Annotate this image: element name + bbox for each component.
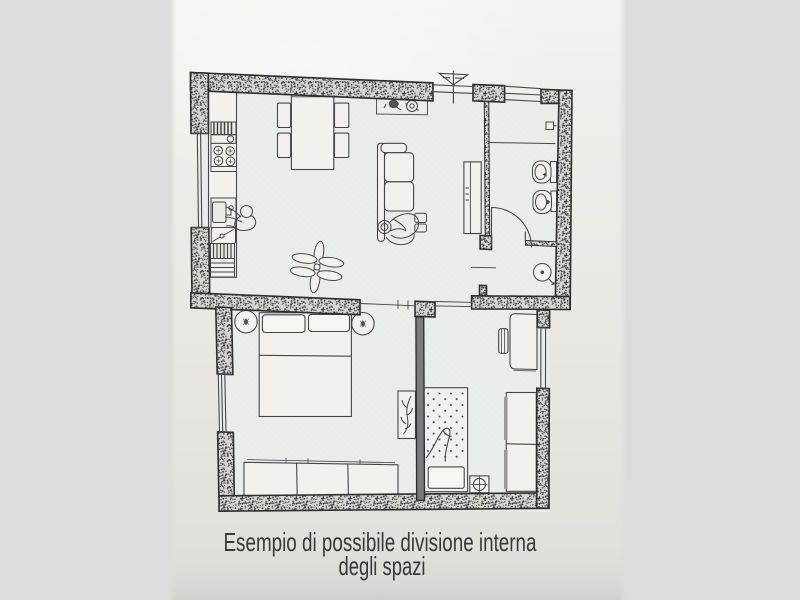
svg-text:degli spazi: degli spazi	[339, 551, 426, 581]
